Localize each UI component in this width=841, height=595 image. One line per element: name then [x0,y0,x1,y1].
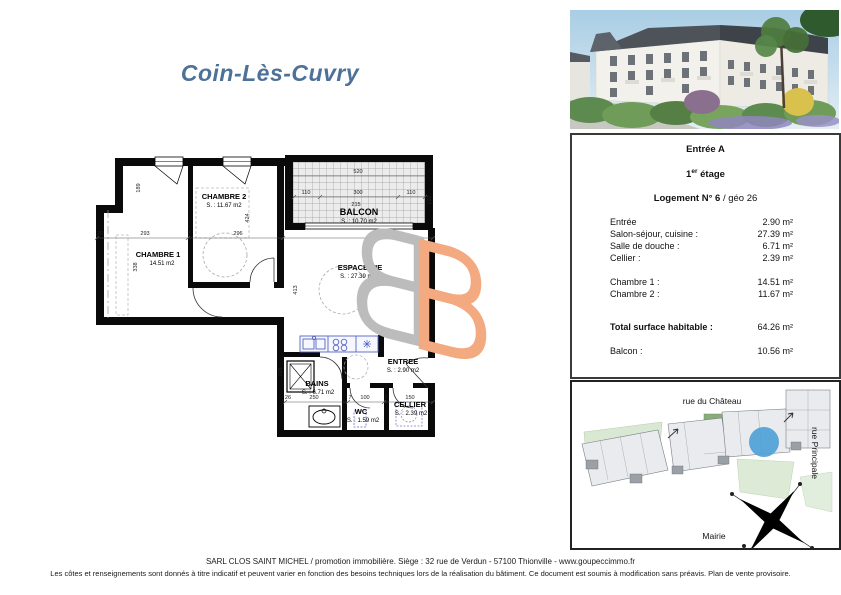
svg-text:296: 296 [233,231,242,237]
unit-geo: / géo 26 [720,193,757,204]
floor-word: étage [697,169,724,180]
svg-text:26: 26 [285,395,291,401]
svg-text:WC: WC [355,407,368,416]
footer-line-2: Les côtes et renseignements sont donnés … [0,569,841,578]
svg-text:S. : 2.39 m2: S. : 2.39 m2 [395,411,428,417]
svg-text:110: 110 [407,190,416,196]
building-photo [570,10,839,129]
balcony-row: Balcon :10.56 m² [572,345,839,357]
svg-text:BALCON: BALCON [340,207,379,217]
unit-number: Logement N° 6 [654,193,721,204]
surface-row: Entrée2.90 m² [572,216,839,228]
page-title: Coin-Lès-Cuvry [150,60,390,87]
svg-text:520: 520 [353,169,362,175]
svg-text:CHAMBRE 2: CHAMBRE 2 [202,192,247,201]
entrance-label: Entrée A [572,144,839,155]
svg-text:7: 7 [187,231,190,237]
svg-text:S. : 11.67 m2: S. : 11.67 m2 [206,203,242,209]
svg-text:7: 7 [384,395,387,401]
svg-text:S. : 2.90 m2: S. : 2.90 m2 [387,368,420,374]
kitchen-counter [300,336,378,352]
floor-label: 1er étage [572,168,839,180]
watermark-gray-b [362,222,419,346]
svg-text:338: 338 [133,262,139,271]
svg-text:300: 300 [353,190,362,196]
unit-label: Logement N° 6 / géo 26 [572,193,839,204]
svg-text:ENTREE: ENTREE [388,357,418,366]
mairie-label: Mairie [702,531,725,541]
svg-text:189: 189 [136,183,142,192]
svg-text:20: 20 [97,231,103,237]
street-right-label: rue Principale [810,427,820,479]
surface-row: Chambre 2 :11.67 m² [572,288,839,300]
street-top-label: rue du Château [683,396,742,406]
footer-line-1: SARL CLOS SAINT MICHEL / promotion immob… [0,557,841,566]
site-map: rue du Château rue Principale Mairie [570,380,841,550]
svg-text:CELLIER: CELLIER [394,400,427,409]
surface-rows: Entrée2.90 m² Salon-séjour, cuisine :27.… [572,216,839,357]
svg-text:293: 293 [140,231,149,237]
total-row: Total surface habitable :64.26 m² [572,321,839,333]
svg-text:226: 226 [278,367,284,376]
svg-text:S. : 10.70 m2: S. : 10.70 m2 [341,219,377,225]
svg-text:S. : 6.71 m2: S. : 6.71 m2 [302,390,335,396]
surface-row: Salle de douche :6.71 m² [572,240,839,252]
surface-row: Cellier :2.39 m² [572,252,839,264]
location-marker [749,427,779,457]
surface-row: Chambre 1 :14.51 m² [572,276,839,288]
svg-text:14.51 m2: 14.51 m2 [149,261,175,267]
floor-plan: 520 110 300 110 215 36 20 293 7 296 26 2… [88,140,508,450]
svg-text:CHAMBRE 1: CHAMBRE 1 [136,250,181,259]
svg-text:110: 110 [302,190,311,196]
info-panel: Entrée A 1er étage Logement N° 6 / géo 2… [570,133,841,379]
site-map-art: rue du Château rue Principale Mairie [572,382,839,548]
svg-text:413: 413 [293,285,299,294]
building-photo-art [570,10,839,129]
svg-text:192: 192 [427,195,433,204]
svg-text:S. : 1.59 m2: S. : 1.59 m2 [347,418,380,424]
svg-text:424: 424 [245,213,251,222]
svg-text:7: 7 [348,395,351,401]
document-page: Coin-Lès-Cuvry [0,0,841,595]
surface-row: Salon-séjour, cuisine :27.39 m² [572,228,839,240]
svg-text:100: 100 [360,395,369,401]
svg-text:BAINS: BAINS [305,379,328,388]
